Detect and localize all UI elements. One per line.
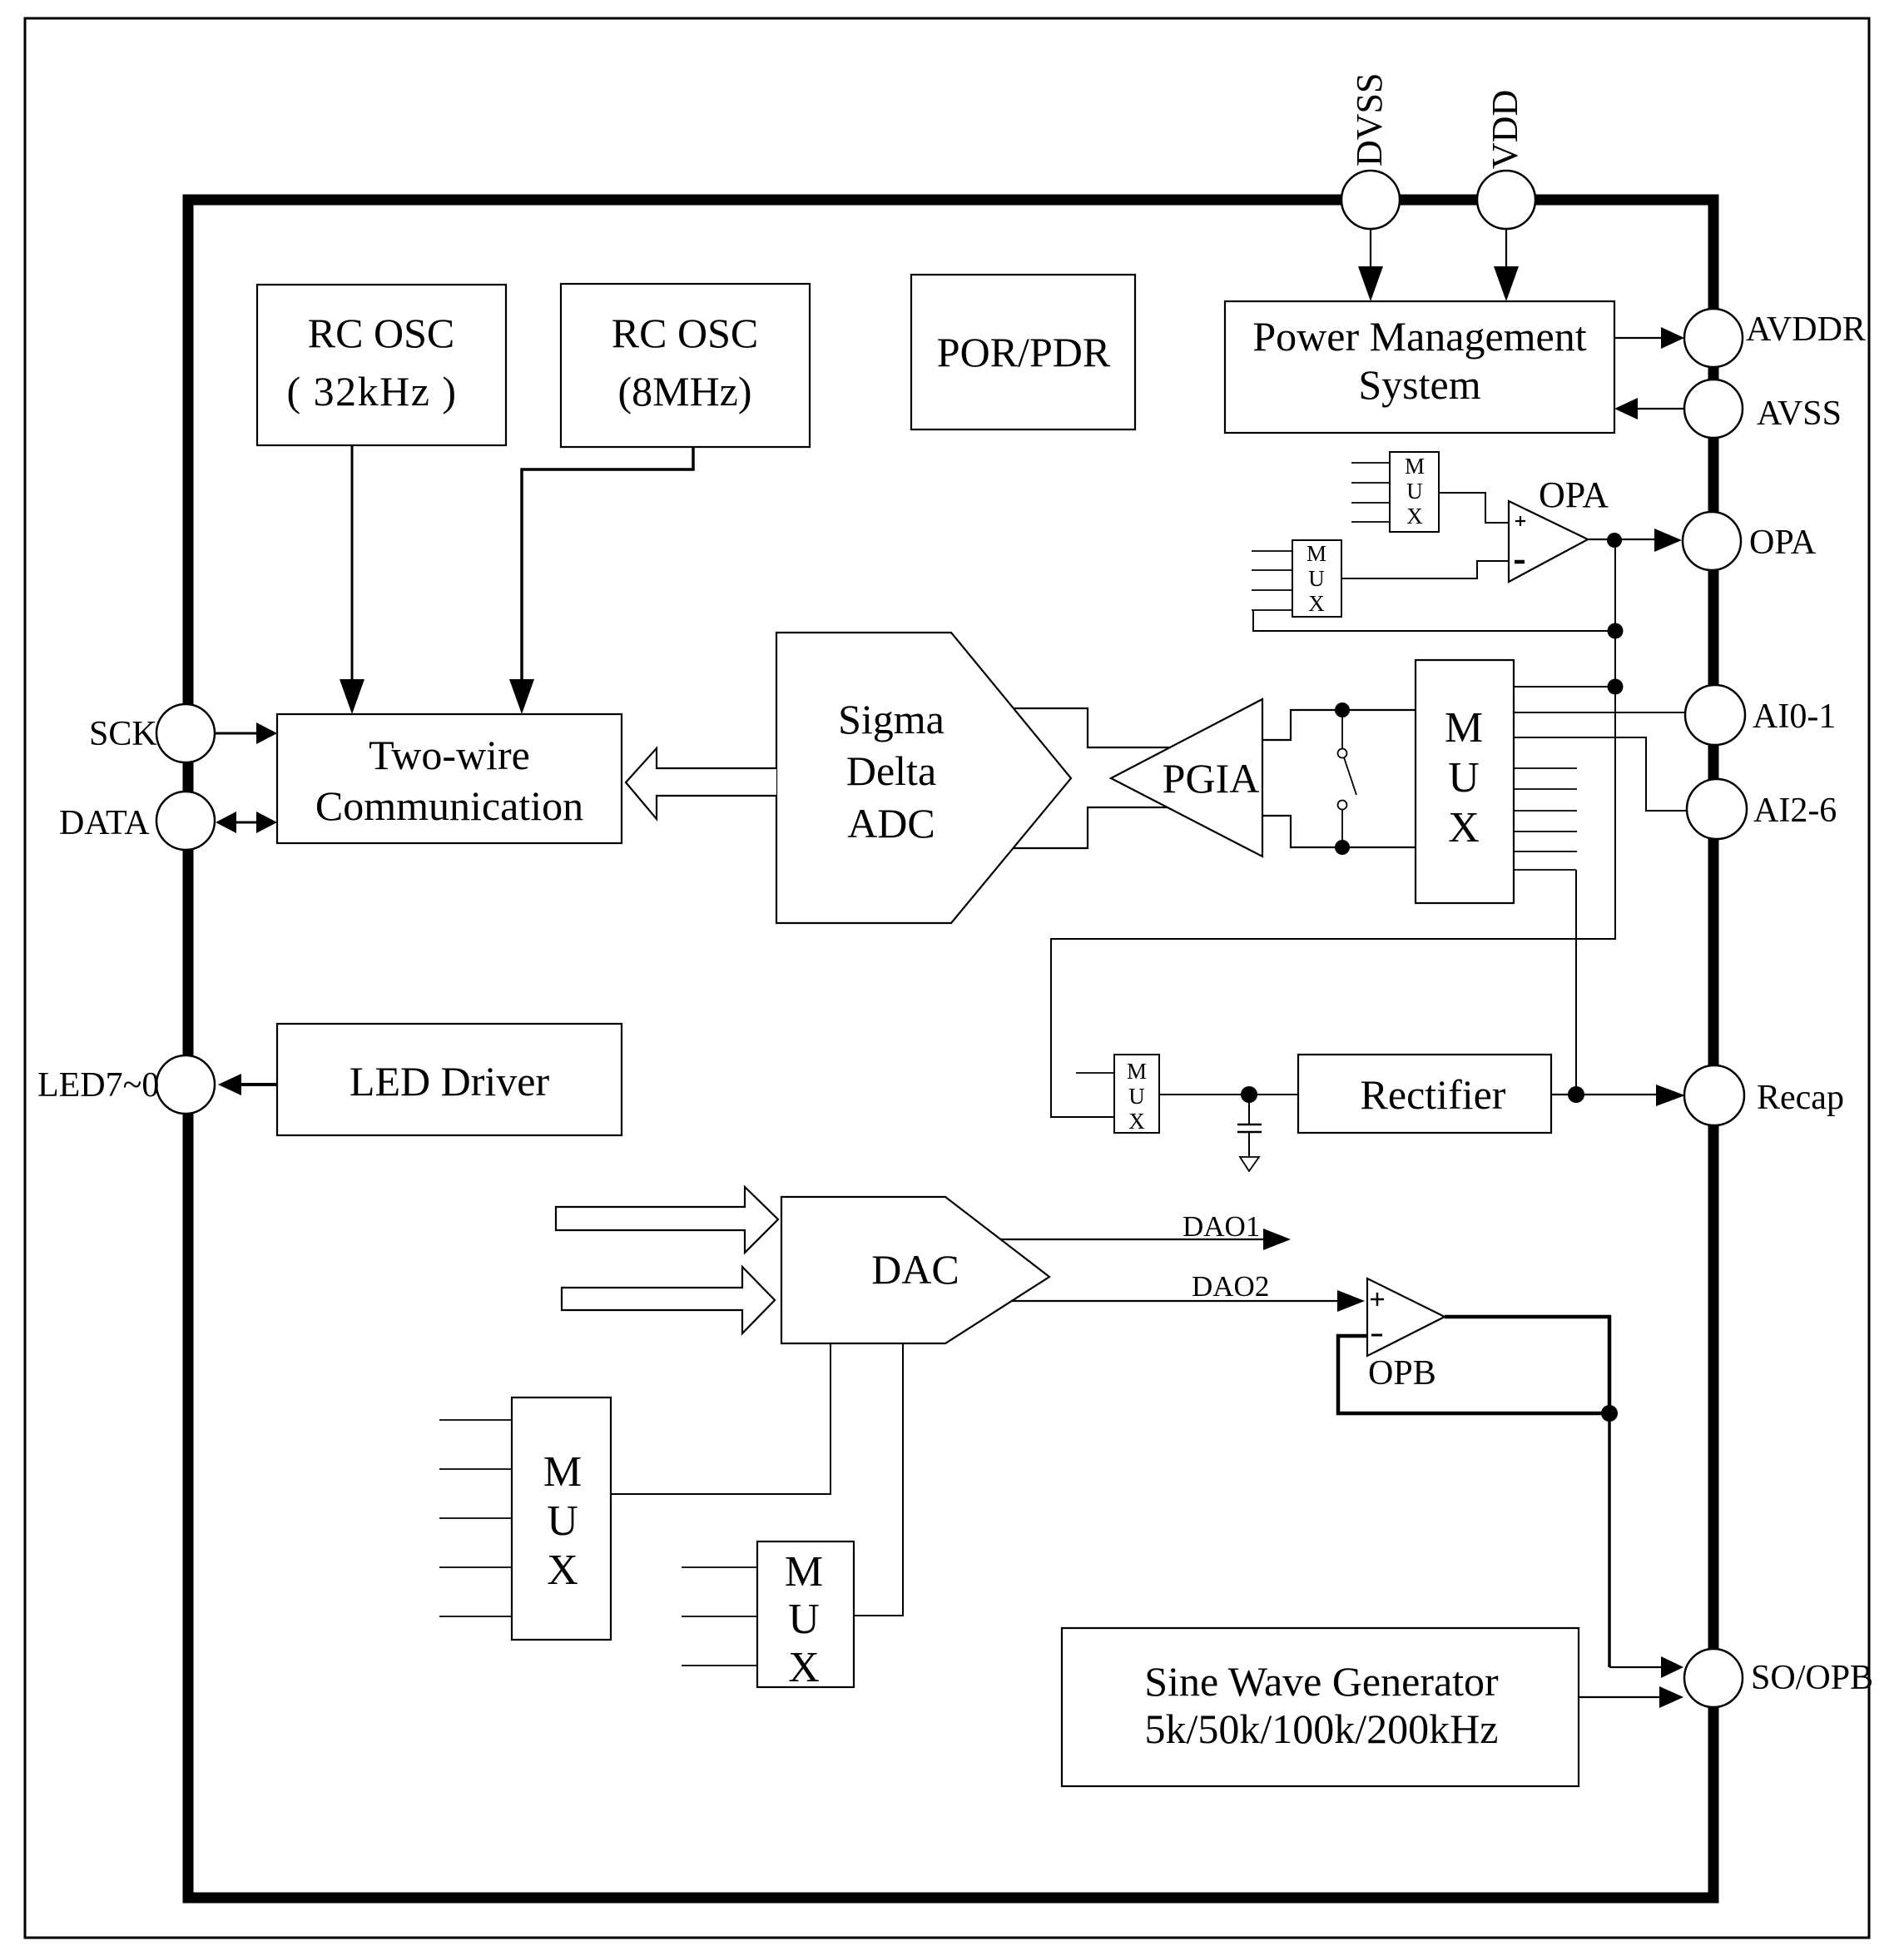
svg-text:Rectifier: Rectifier <box>1361 1071 1506 1118</box>
svg-text:U: U <box>1406 479 1423 504</box>
svg-text:POR/PDR: POR/PDR <box>937 329 1111 375</box>
svg-text:M: M <box>1405 454 1425 479</box>
svg-text:SCK: SCK <box>89 715 157 753</box>
svg-text:AI0-1: AI0-1 <box>1753 698 1836 736</box>
svg-text:X: X <box>547 1546 578 1594</box>
svg-text:Sigma: Sigma <box>838 696 945 742</box>
svg-text:X: X <box>1308 591 1325 616</box>
svg-text:RC OSC: RC OSC <box>612 310 758 356</box>
svg-text:Recap: Recap <box>1757 1079 1844 1117</box>
svg-text:U: U <box>1128 1084 1145 1109</box>
svg-text:DVSS: DVSS <box>1349 73 1390 167</box>
svg-text:LED Driver: LED Driver <box>350 1058 550 1105</box>
svg-text:5k/50k/100k/200kHz: 5k/50k/100k/200kHz <box>1145 1705 1499 1752</box>
svg-text:SO/OPB: SO/OPB <box>1751 1659 1873 1697</box>
svg-text:Communication: Communication <box>315 782 583 829</box>
svg-text:AVSS: AVSS <box>1757 395 1842 433</box>
svg-text:Sine Wave Generator: Sine Wave Generator <box>1144 1658 1499 1705</box>
svg-text:AI2-6: AI2-6 <box>1753 792 1837 830</box>
svg-text:X: X <box>1406 504 1423 529</box>
svg-text:U: U <box>788 1596 820 1643</box>
svg-text:DAC: DAC <box>871 1246 959 1293</box>
svg-text:(8MHz): (8MHz) <box>617 368 751 415</box>
svg-text:PGIA: PGIA <box>1163 755 1260 802</box>
svg-text:VDD: VDD <box>1485 90 1525 169</box>
svg-text:M: M <box>1445 704 1483 752</box>
svg-text:U: U <box>547 1497 578 1545</box>
svg-text:( 32kHz ): ( 32kHz ) <box>286 368 457 415</box>
svg-text:X: X <box>788 1644 820 1691</box>
svg-text:System: System <box>1358 361 1480 408</box>
svg-text:Two-wire: Two-wire <box>369 732 530 778</box>
svg-text:ADC: ADC <box>847 800 935 846</box>
svg-text:OPA: OPA <box>1749 524 1817 562</box>
svg-text:X: X <box>1128 1109 1145 1134</box>
svg-text:M: M <box>1127 1059 1147 1084</box>
svg-text:Power Management: Power Management <box>1252 313 1586 360</box>
svg-text:M: M <box>785 1548 823 1596</box>
svg-text:M: M <box>543 1448 582 1496</box>
svg-text:OPB: OPB <box>1368 1354 1436 1393</box>
svg-text:M: M <box>1307 541 1326 566</box>
svg-text:OPA: OPA <box>1539 474 1609 515</box>
svg-text:X: X <box>1448 804 1480 851</box>
svg-text:DAO2: DAO2 <box>1192 1270 1269 1303</box>
svg-text:DATA: DATA <box>59 804 150 842</box>
svg-text:AVDDR: AVDDR <box>1746 310 1866 349</box>
svg-text:U: U <box>1448 754 1480 802</box>
svg-text:RC OSC: RC OSC <box>308 310 454 356</box>
svg-text:Delta: Delta <box>846 747 936 794</box>
svg-text:LED7~0: LED7~0 <box>37 1066 159 1105</box>
svg-text:U: U <box>1308 566 1325 591</box>
svg-text:DAO1: DAO1 <box>1183 1210 1260 1243</box>
